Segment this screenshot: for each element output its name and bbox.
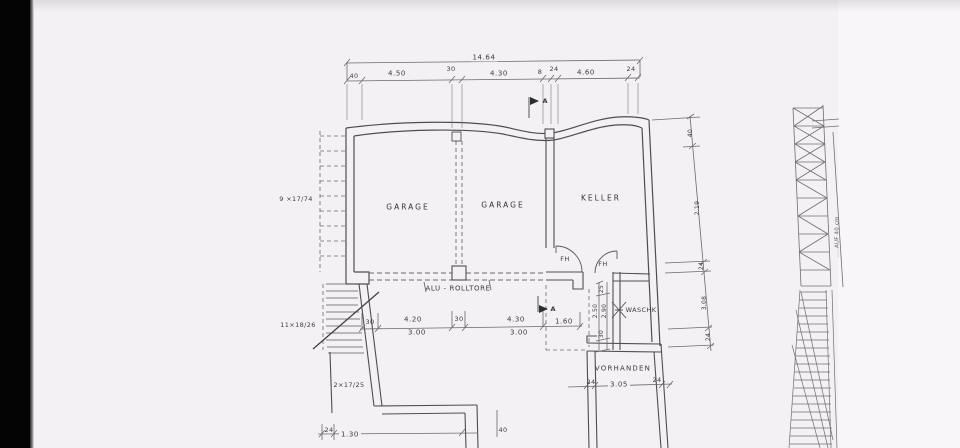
dim-label-top-30: 30 [446,66,455,73]
section-label-a-top: A [542,98,547,105]
dim-label-vorh-305: 3.05 [608,382,630,389]
dim-label-bottom-420: 4.20 [404,317,422,324]
room-label-keller: KELLER [581,194,621,202]
note-label-stair-exit: 2×17/25 [333,382,364,389]
section-label-a-bottom: A [550,306,555,313]
garage-partition-dashed [456,141,462,268]
partition-head-post [452,132,461,141]
dim-label-ll-130: 1.30 [339,432,361,439]
dim-label-bottom-30b: 30 [454,316,463,323]
dim-label-right-308: 3.08 [702,296,708,311]
side-drawing-ladder [793,105,843,287]
roller-door-post [452,266,466,280]
dim-label-bottom-430: 4.30 [507,317,525,324]
dim-label-right-40: 40 [688,129,694,137]
section-marker-top [529,97,539,118]
keller-partition-wall [545,129,583,289]
room-label-garage-2: GARAGE [481,201,524,209]
section-flag-icon [530,97,539,105]
dim-label-top-24a: 24 [549,66,558,73]
note-label-rolltore: ALU - ROLLTORE [425,286,490,293]
dim-label-top-430: 4.30 [488,71,510,78]
vorhanden-walls [587,344,668,448]
door-label-fh-2: FH [598,261,607,268]
dim-label-top-450: 4.50 [386,71,408,78]
dim-label-right-24a: 24 [699,262,705,270]
door-label-fh-1: FH [560,256,569,263]
dim-label-vorh-24b: 24 [652,377,661,384]
dim-label-total: 14.64 [470,55,497,62]
dim-label-waschk-30: 30 [599,330,605,338]
side-drawing-stair-section [789,290,837,448]
dim-label-right-24b: 24 [706,333,712,341]
dim-label-right-219: 2.19 [695,201,701,216]
room-label-vorhanden: VORHANDEN [595,366,651,373]
dim-label-vorh-24a: 24 [586,379,595,386]
dim-label-waschk-250: 2.50 [593,304,599,319]
room-label-garage-1: GARAGE [386,203,429,211]
dim-label-bottom-30a: 30 [365,319,374,326]
dim-bottom-chain [359,308,583,332]
dim-label-waschk-290: 2.90 [602,304,608,319]
note-label-stair-lower: 11×18/26 [280,322,316,329]
dim-right-chain [652,114,714,351]
note-label-side: .....AUF 40 cm [835,216,841,257]
dim-label-ll-40: 40 [498,427,507,434]
stair-lower-treads [326,284,364,353]
note-label-stair-upper: 9 ×17/74 [279,196,313,203]
section-flag-icon [539,305,548,313]
stairwell-walls [330,284,478,448]
dim-label-bottom-160: 1.60 [555,319,573,326]
dim-label-top-24b: 24 [626,66,635,73]
dim-label-bottom-300b: 3.00 [510,330,528,337]
demolition-x-icon [612,302,626,318]
plan-linework [0,0,960,448]
stair-upper-dashed [320,131,347,272]
dim-label-top-460: 4.60 [575,70,597,77]
dim-label-ll-24: 24 [324,427,333,434]
dim-label-bottom-300a: 3.00 [408,330,426,337]
dim-label-top-8: 8 [538,69,543,76]
dim-label-top-40: 40 [349,73,358,80]
scanned-floor-plan: 14.64 40 4.50 30 4.30 8 24 4.60 24 GARAG… [0,0,960,448]
dim-label-waschk-25: 25 [599,285,605,293]
room-label-waschk: WASCHK [626,307,657,314]
section-marker-bottom [538,296,548,313]
